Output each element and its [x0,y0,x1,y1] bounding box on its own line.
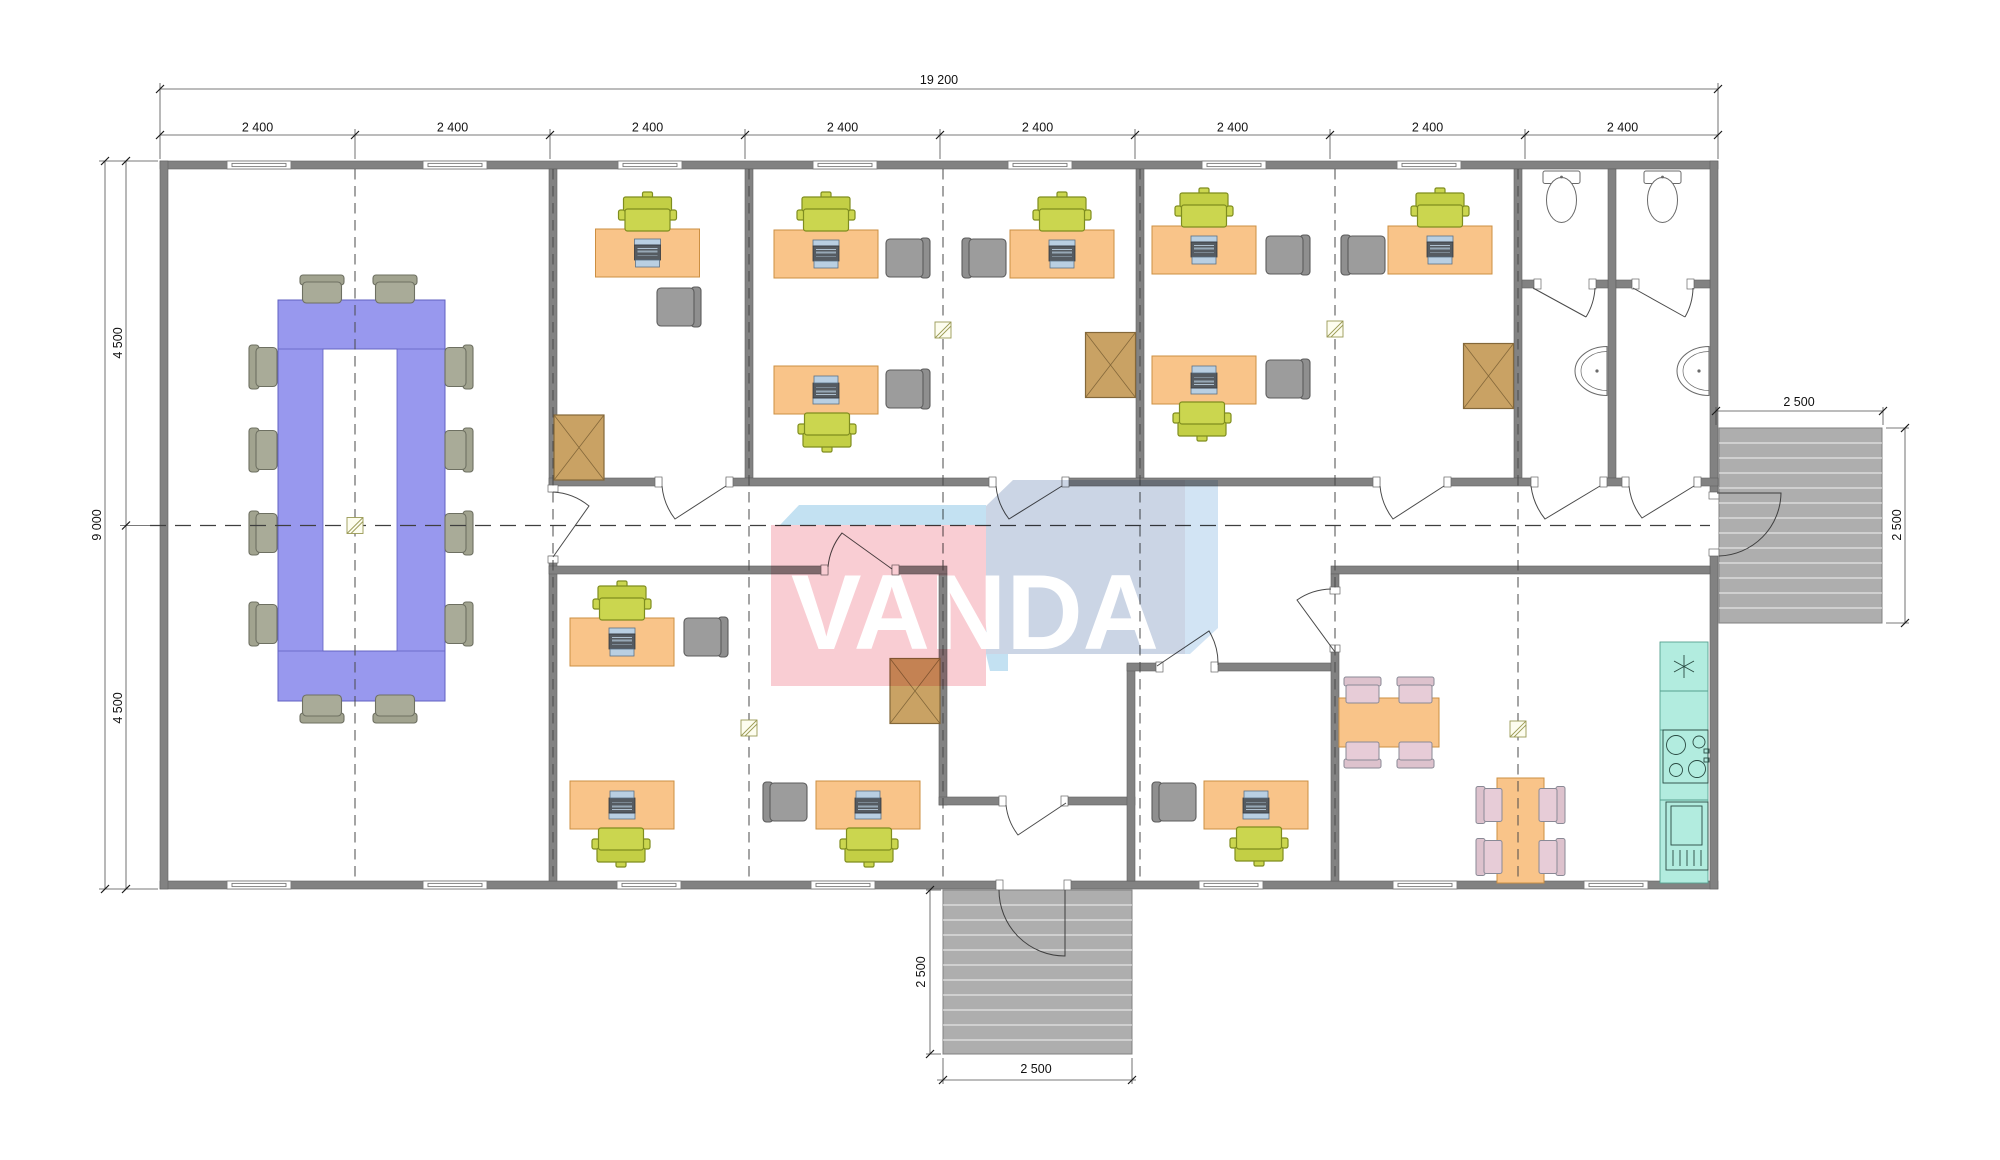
svg-text:2 500: 2 500 [1890,509,1904,540]
svg-text:2 500: 2 500 [1783,395,1814,409]
svg-text:4 500: 4 500 [111,327,125,358]
svg-text:2 400: 2 400 [1022,121,1053,135]
svg-text:2 400: 2 400 [1607,121,1638,135]
svg-text:2 500: 2 500 [914,956,928,987]
svg-text:9 000: 9 000 [90,509,104,540]
svg-text:2 400: 2 400 [1412,121,1443,135]
svg-text:2 400: 2 400 [827,121,858,135]
svg-text:2 400: 2 400 [632,121,663,135]
svg-text:2 400: 2 400 [1217,121,1248,135]
svg-text:19 200: 19 200 [920,73,958,87]
svg-text:2 400: 2 400 [242,121,273,135]
svg-text:VANDA: VANDA [791,552,1159,672]
svg-text:4 500: 4 500 [111,692,125,723]
svg-text:2 400: 2 400 [437,121,468,135]
svg-text:2 500: 2 500 [1020,1062,1051,1076]
